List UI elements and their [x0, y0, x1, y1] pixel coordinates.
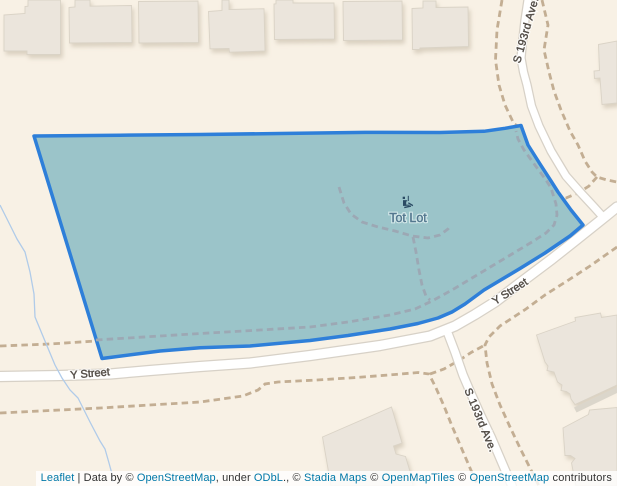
svg-text:Tot Lot: Tot Lot [389, 211, 427, 225]
